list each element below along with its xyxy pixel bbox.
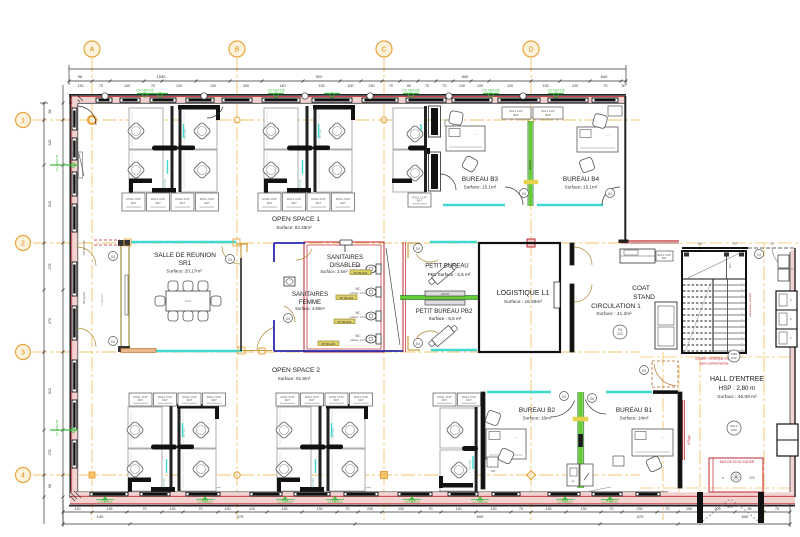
svg-text:100: 100 (686, 507, 692, 511)
svg-text:130: 130 (78, 84, 84, 88)
svg-text:90/7: 90/7 (466, 398, 472, 402)
svg-text:HSP: HSP (731, 428, 737, 432)
svg-text:220: 220 (749, 476, 755, 480)
svg-text:D4: D4 (416, 342, 420, 346)
svg-text:90/7: 90/7 (291, 201, 297, 205)
svg-text:D8: D8 (590, 397, 594, 401)
svg-text:90/7: 90/7 (204, 201, 210, 205)
svg-text:HSP : 2,80 m: HSP : 2,80 m (719, 385, 756, 392)
svg-text:D3: D3 (228, 258, 232, 262)
svg-text:CA 140x135: CA 140x135 (482, 89, 500, 93)
svg-text:BUREAU B1: BUREAU B1 (616, 407, 653, 414)
svg-text:CA 140x135: CA 140x135 (547, 89, 565, 93)
svg-text:CA 140x135: CA 140x135 (97, 500, 113, 504)
svg-text:e: e (722, 476, 724, 480)
svg-text:SY/7120: SY/7120 (319, 129, 322, 139)
svg-text:ascenseur privatif: ascenseur privatif (748, 293, 752, 317)
svg-text:90/7: 90/7 (309, 398, 315, 402)
svg-text:CIRCULATION 1: CIRCULATION 1 (591, 303, 641, 310)
svg-text:230: 230 (637, 507, 643, 511)
svg-text:90/7: 90/7 (340, 201, 346, 205)
svg-text:Surface : 16.29m²: Surface : 16.29m² (504, 299, 543, 305)
svg-text:CA 140x135: CA 140x135 (55, 155, 59, 172)
svg-text:BUREAU B2: BUREAU B2 (519, 407, 556, 414)
svg-text:OPEN SPACE 2: OPEN SPACE 2 (272, 367, 320, 374)
svg-text:98: 98 (48, 110, 52, 114)
svg-text:SY/7120: SY/7120 (164, 179, 167, 189)
svg-text:130: 130 (543, 84, 549, 88)
svg-text:SY/7120: SY/7120 (469, 460, 472, 470)
svg-text:1: 1 (21, 118, 25, 125)
svg-text:96: 96 (78, 74, 83, 79)
svg-text:100: 100 (348, 84, 354, 88)
svg-text:100: 100 (477, 84, 483, 88)
svg-text:3: 3 (21, 350, 25, 357)
svg-text:337: 337 (732, 242, 737, 246)
svg-text:LOGISTIQUE L1: LOGISTIQUE L1 (497, 290, 550, 297)
svg-text:140: 140 (280, 84, 286, 88)
svg-text:1530: 1530 (157, 74, 167, 79)
svg-text:D4: D4 (608, 192, 612, 196)
svg-text:130: 130 (97, 514, 104, 519)
svg-text:90/7: 90/7 (187, 398, 193, 402)
svg-text:900: 900 (662, 256, 667, 260)
svg-text:180: 180 (491, 469, 496, 473)
svg-text:Surface: 16m²: Surface: 16m² (523, 416, 552, 421)
svg-text:CA 140x135: CA 140x135 (402, 89, 420, 93)
svg-text:70: 70 (604, 84, 608, 88)
svg-text:SY/7120: SY/7120 (184, 129, 187, 139)
svg-text:90/7: 90/7 (316, 201, 322, 205)
svg-text:WC: WC (355, 287, 361, 291)
svg-text:surface: 1.1m²: surface: 1.1m² (350, 291, 367, 295)
svg-text:D4: D4 (286, 317, 290, 321)
svg-text:CA 140x135: CA 140x135 (267, 89, 285, 93)
svg-text:Surface: 14m²: Surface: 14m² (620, 416, 649, 421)
svg-text:130: 130 (170, 507, 176, 511)
svg-text:130: 130 (398, 507, 404, 511)
svg-text:90/7: 90/7 (138, 398, 144, 402)
svg-text:PETIT BUREAU PB2: PETIT BUREAU PB2 (416, 309, 473, 315)
svg-text:Surface: 15.1m²: Surface: 15.1m² (464, 185, 497, 190)
svg-text:230: 230 (367, 507, 373, 511)
svg-text:130: 130 (282, 507, 288, 511)
svg-text:BUREAU B3: BUREAU B3 (462, 176, 499, 183)
svg-text:370: 370 (48, 318, 52, 324)
svg-text:70: 70 (519, 507, 523, 511)
svg-text:D3: D3 (522, 192, 526, 196)
svg-text:130: 130 (317, 507, 323, 511)
svg-text:SY/7120: SY/7120 (163, 478, 166, 488)
svg-text:95: 95 (770, 242, 774, 246)
svg-text:D4: D4 (562, 395, 566, 399)
svg-text:SANITAIRES: SANITAIRES (327, 254, 363, 261)
svg-text:120: 120 (507, 84, 513, 88)
svg-text:130: 130 (225, 507, 231, 511)
svg-text:D4: D4 (111, 255, 115, 259)
svg-text:CA 140x135: CA 140x135 (602, 500, 618, 504)
svg-text:278: 278 (48, 450, 52, 456)
svg-text:C4: C4 (757, 253, 761, 257)
svg-text:CA 140x135: CA 140x135 (136, 89, 154, 93)
svg-text:640: 640 (601, 74, 608, 79)
svg-text:90/7: 90/7 (211, 398, 217, 402)
svg-text:70: 70 (389, 84, 393, 88)
svg-text:160: 160 (697, 242, 702, 246)
svg-text:90/7: 90/7 (334, 398, 340, 402)
svg-text:230: 230 (572, 84, 578, 88)
svg-text:278: 278 (48, 264, 52, 270)
svg-text:800: 800 (462, 74, 469, 79)
svg-text:130: 130 (546, 507, 552, 511)
svg-text:600: 600 (477, 514, 484, 519)
svg-text:PP 80x204: PP 80x204 (322, 342, 336, 346)
svg-text:513: 513 (48, 388, 52, 394)
svg-text:PP 80x204: PP 80x204 (338, 320, 352, 324)
svg-text:Surface: 82.35m²: Surface: 82.35m² (276, 225, 312, 230)
svg-text:CA 140x135: CA 140x135 (472, 500, 488, 504)
svg-text:70: 70 (610, 507, 614, 511)
svg-text:800: 800 (727, 505, 733, 509)
svg-text:~~: ~~ (661, 435, 665, 439)
svg-text:70: 70 (775, 507, 779, 511)
svg-text:130: 130 (319, 84, 325, 88)
svg-text:70: 70 (151, 84, 155, 88)
svg-text:SR1: SR1 (179, 260, 192, 267)
svg-text:Surface : 5,5 m²: Surface : 5,5 m² (429, 316, 462, 321)
svg-text:220: 220 (617, 332, 623, 336)
svg-text:WC: WC (355, 334, 361, 338)
svg-text:30: 30 (622, 84, 626, 88)
svg-text:70: 70 (346, 507, 350, 511)
svg-text:Surface: 20.17m²: Surface: 20.17m² (166, 269, 202, 274)
svg-text:130: 130 (459, 84, 465, 88)
svg-text:Surface : 46.09 m²: Surface : 46.09 m² (717, 394, 757, 400)
svg-text:70: 70 (443, 84, 447, 88)
svg-text:BAS DE SO ACCADER: BAS DE SO ACCADER (720, 460, 755, 464)
svg-text:~~: ~~ (473, 132, 477, 136)
svg-text:escalier metallique loque: escalier metallique loque (695, 357, 732, 361)
svg-text:130: 130 (456, 507, 462, 511)
svg-text:SANITAIRES: SANITAIRES (292, 291, 328, 298)
svg-text:130: 130 (124, 84, 130, 88)
svg-text:95: 95 (748, 507, 752, 511)
svg-text:70: 70 (143, 507, 147, 511)
svg-text:HALL D'ENTREE: HALL D'ENTREE (710, 376, 764, 383)
svg-text:SY/7120: SY/7120 (332, 428, 335, 438)
svg-text:70: 70 (425, 84, 429, 88)
svg-text:513: 513 (48, 201, 52, 207)
svg-text:SP gratin: SP gratin (82, 292, 86, 305)
svg-text:surface: 1.1m²: surface: 1.1m² (350, 315, 367, 319)
svg-text:eTA/go: eTA/go (687, 435, 691, 445)
svg-text:90/7: 90/7 (285, 398, 291, 402)
svg-text:80: 80 (407, 84, 411, 88)
svg-text:900?: 900? (545, 113, 551, 117)
svg-text:Surface: 3.5m²: Surface: 3.5m² (320, 269, 348, 274)
svg-text:90/7: 90/7 (358, 398, 364, 402)
svg-text:Surface: 4.88m²: Surface: 4.88m² (295, 306, 325, 311)
svg-text:135: 135 (107, 507, 113, 511)
svg-text:CA 140x135: CA 140x135 (55, 420, 59, 437)
svg-text:ROLL CUP: ROLL CUP (542, 109, 555, 113)
svg-text:####: #### (185, 299, 192, 303)
svg-text:130: 130 (491, 507, 497, 511)
svg-text:90/7: 90/7 (267, 201, 273, 205)
svg-text:4: 4 (21, 473, 25, 480)
svg-text:330: 330 (243, 84, 249, 88)
svg-text:90/7: 90/7 (162, 398, 168, 402)
svg-text:D4: D4 (111, 340, 115, 344)
svg-text:~~: ~~ (514, 435, 518, 439)
svg-text:surface: 1.1m²: surface: 1.1m² (350, 338, 367, 342)
svg-text:70: 70 (199, 507, 203, 511)
svg-text:PP 80x204: PP 80x204 (354, 271, 368, 275)
svg-text:130: 130 (176, 84, 182, 88)
svg-text:230: 230 (369, 84, 375, 88)
svg-text:HSP: HSP (731, 356, 737, 360)
svg-text:CA 140x135: CA 140x135 (197, 500, 213, 504)
svg-text:123: 123 (728, 263, 732, 268)
svg-text:COAT: COAT (632, 285, 650, 292)
svg-text:70: 70 (99, 84, 103, 88)
svg-text:579: 579 (237, 514, 244, 519)
svg-text:90/7: 90/7 (155, 201, 161, 205)
svg-text:CA 140x135: CA 140x135 (557, 500, 573, 504)
svg-text:70: 70 (666, 507, 670, 511)
svg-text:Surface : 41.2m²: Surface : 41.2m² (596, 311, 632, 317)
svg-text:920: 920 (316, 74, 323, 79)
svg-text:470: 470 (637, 514, 644, 519)
svg-text:130: 130 (210, 84, 216, 88)
svg-text:SALLE DE REUNION: SALLE DE REUNION (154, 252, 216, 259)
svg-text:BUREAU B4: BUREAU B4 (563, 176, 600, 183)
svg-text:SY/7120: SY/7120 (299, 179, 302, 189)
svg-text:70: 70 (429, 507, 433, 511)
svg-text:90/7: 90/7 (131, 201, 137, 205)
svg-text:WC: WC (355, 311, 361, 315)
svg-text:MOBILE: MOBILE (528, 160, 532, 170)
svg-text:120: 120 (249, 507, 255, 511)
svg-text:ROLL CUP: ROLL CUP (510, 109, 523, 113)
svg-text:SY/7120: SY/7120 (312, 478, 315, 488)
svg-text:WC: WC (355, 264, 361, 268)
svg-text:98: 98 (48, 484, 52, 488)
svg-text:CA 140x135: CA 140x135 (327, 500, 343, 504)
svg-text:D4: D4 (416, 247, 420, 251)
svg-text:2: 2 (21, 241, 25, 248)
svg-text:~~: ~~ (606, 133, 610, 137)
svg-text:sans contremarche: sans contremarche (700, 362, 729, 366)
svg-text:STAND: STAND (633, 294, 655, 301)
svg-text:D9: D9 (642, 369, 646, 373)
svg-text:C: C (381, 47, 386, 54)
svg-text:320: 320 (48, 140, 52, 146)
svg-text:D: D (528, 47, 533, 54)
svg-text:FEMME: FEMME (299, 299, 321, 306)
svg-text:B: B (235, 47, 240, 54)
svg-text:130: 130 (581, 507, 587, 511)
svg-text:120: 120 (75, 507, 81, 511)
svg-text:90/7: 90/7 (180, 201, 186, 205)
svg-text:600: 600 (742, 514, 749, 519)
svg-text:SY/7120: SY/7120 (183, 428, 186, 438)
svg-text:1.70x2.04: 1.70x2.04 (100, 294, 104, 306)
svg-text:90/7: 90/7 (417, 198, 423, 202)
svg-text:900?: 900? (513, 113, 519, 117)
svg-text:PP 80x204: PP 80x204 (340, 296, 354, 300)
svg-text:90/7: 90/7 (442, 398, 448, 402)
svg-text:CA 140x135: CA 140x135 (404, 500, 420, 504)
svg-text:A: A (90, 47, 95, 54)
svg-text:Surface: 91.9m²: Surface: 91.9m² (278, 376, 311, 381)
svg-text:CA 140x135: CA 140x135 (277, 500, 293, 504)
svg-text:Surface: 15.1m²: Surface: 15.1m² (565, 185, 598, 190)
svg-text:OPEN SPACE 1: OPEN SPACE 1 (272, 216, 320, 223)
svg-text:#####: ##### (441, 292, 450, 296)
